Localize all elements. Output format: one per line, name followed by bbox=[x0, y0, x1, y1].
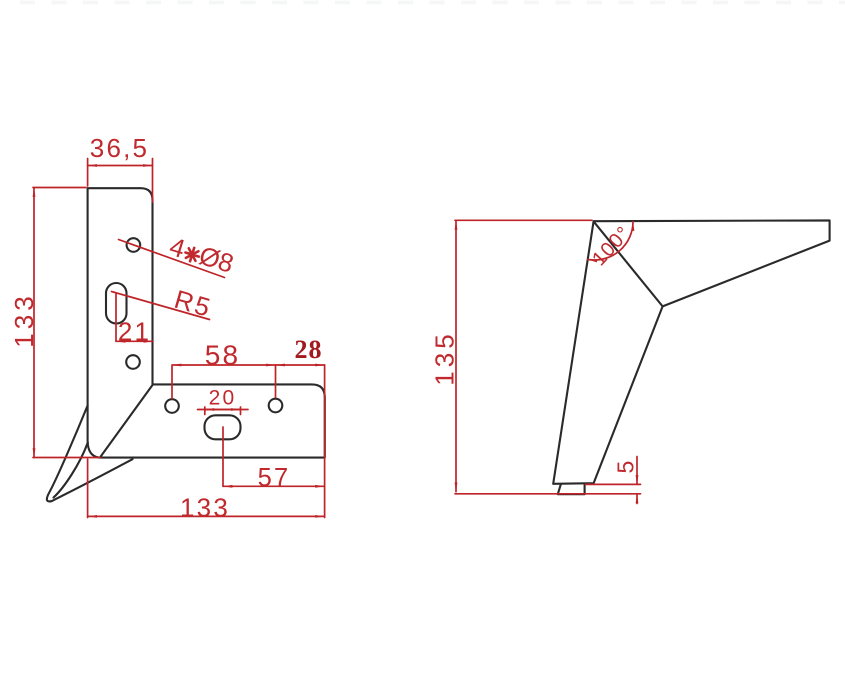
svg-text:5: 5 bbox=[613, 459, 639, 474]
svg-text:21: 21 bbox=[118, 317, 151, 347]
svg-text:57: 57 bbox=[258, 464, 291, 492]
svg-text:Ø8: Ø8 bbox=[196, 240, 237, 279]
svg-text:36,5: 36,5 bbox=[90, 133, 149, 163]
svg-text:133: 133 bbox=[180, 493, 230, 523]
svg-text:4: 4 bbox=[166, 231, 191, 265]
svg-text:133: 133 bbox=[9, 292, 39, 347]
svg-text:135: 135 bbox=[430, 330, 460, 385]
svg-text:R5: R5 bbox=[171, 284, 215, 323]
svg-text:58: 58 bbox=[205, 340, 241, 371]
svg-text:20: 20 bbox=[209, 387, 237, 410]
svg-text:28: 28 bbox=[295, 335, 323, 364]
